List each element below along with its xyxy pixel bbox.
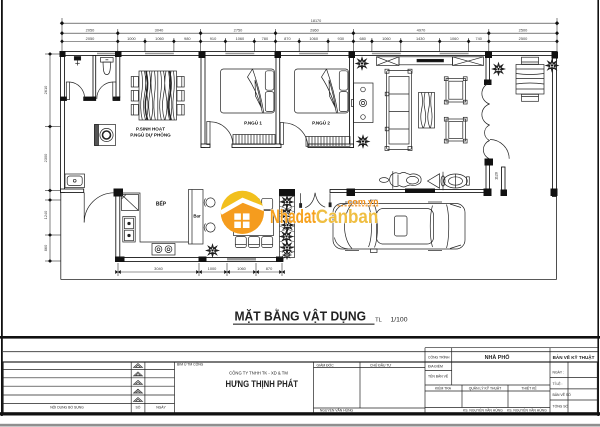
svg-text:TL: TL [375,318,383,324]
svg-text:KS. NGUYỄN VĂN HÙNG: KS. NGUYỄN VĂN HÙNG [463,408,503,413]
svg-text:CHỦ ĐẦU TƯ: CHỦ ĐẦU TƯ [370,362,391,367]
svg-text:KIỂM TRA: KIỂM TRA [435,385,452,390]
svg-text:780: 780 [262,36,269,41]
svg-text:1000: 1000 [208,266,217,271]
svg-text:P.NGỦ 2: P.NGỦ 2 [312,120,330,126]
svg-text:HƯNG THỊNH PHÁT: HƯNG THỊNH PHÁT [226,379,299,389]
svg-text:2860: 2860 [310,27,319,32]
svg-text:NGÀY: NGÀY [156,405,166,409]
svg-text:1000: 1000 [127,36,136,41]
svg-text:SỐ: SỐ [136,404,141,409]
svg-text:QUẢN LÝ KỸ THUẬT: QUẢN LÝ KỸ THUẬT [469,385,502,390]
svg-text:CÔNG TRÌNH: CÔNG TRÌNH [428,355,450,360]
svg-text:BẢN VẼ KỸ THUẬT: BẢN VẼ KỸ THUẬT [553,354,595,360]
svg-text:NGUYỄN VĂN HÙNG: NGUYỄN VĂN HÙNG [320,408,354,413]
svg-text:NỘI DUNG BỔ SUNG: NỘI DUNG BỔ SUNG [50,404,84,409]
svg-text:P.SINH HOẠT: P.SINH HOẠT [136,127,165,132]
svg-text:Bar: Bar [193,214,201,219]
svg-text:740: 740 [475,36,482,41]
svg-text:3040: 3040 [154,266,163,271]
svg-text:1060: 1060 [309,36,318,41]
svg-text:Nhadat: Nhadat [270,206,316,228]
svg-text:930: 930 [338,36,345,41]
svg-text:1120: 1120 [495,172,499,180]
svg-text:Canban: Canban [316,206,379,228]
svg-text:1060: 1060 [382,36,391,41]
svg-text:TÊN BẢN VẼ: TÊN BẢN VẼ [428,373,449,378]
svg-text:1060: 1060 [155,36,164,41]
svg-text:com.vn: com.vn [348,197,379,206]
svg-text:1/100: 1/100 [390,317,407,324]
svg-text:BẢN VẼ SỐ: BẢN VẼ SỐ [553,392,572,397]
svg-text:3040: 3040 [155,27,164,32]
svg-text:870: 870 [266,266,273,271]
svg-text:980: 980 [184,36,191,41]
svg-text:MẶT BẰNG VẬT DỤNG: MẶT BẰNG VẬT DỤNG [235,309,367,324]
svg-text:2610: 2610 [43,85,48,94]
svg-text:P.NGỦ 1: P.NGỦ 1 [244,120,262,126]
svg-text:KS. NGUYỄN VĂN HÙNG: KS. NGUYỄN VĂN HÙNG [507,408,547,413]
svg-text:2050: 2050 [86,36,95,41]
svg-text:1060: 1060 [237,266,246,271]
svg-text:860: 860 [43,244,48,251]
svg-text:2500: 2500 [519,36,528,41]
svg-text:P.NGỦ DỰ PHÒNG: P.NGỦ DỰ PHÒNG [130,130,171,137]
svg-text:TỈ LỆ :: TỈ LỆ : [553,381,563,386]
svg-text:1060: 1060 [450,36,459,41]
svg-text:1060: 1060 [236,36,245,41]
svg-text:GIÁM ĐỐC: GIÁM ĐỐC [317,362,335,367]
svg-text:910: 910 [210,36,217,41]
svg-text:BIM Ủ TM CỘNG: BIM Ủ TM CỘNG [177,362,204,367]
svg-text:ĐỊA ĐIỂM: ĐỊA ĐIỂM [428,364,443,369]
svg-text:18170: 18170 [311,19,322,23]
svg-text:2500: 2500 [519,27,528,32]
svg-text:NGÀY :: NGÀY : [553,371,564,375]
svg-text:THIẾT KẾ: THIẾT KẾ [521,385,537,390]
svg-text:2300: 2300 [43,153,48,162]
svg-text:TỔNG SỐ: TỔNG SỐ [553,403,569,408]
svg-text:2750: 2750 [234,27,243,32]
svg-text:870: 870 [284,36,291,41]
svg-text:680: 680 [359,36,366,41]
svg-text:1240: 1240 [43,210,48,219]
svg-text:2050: 2050 [86,27,95,32]
svg-text:CÔNG TY TNHH TK - XD & TM: CÔNG TY TNHH TK - XD & TM [229,370,288,375]
svg-text:BẾP: BẾP [156,201,167,208]
svg-text:4970: 4970 [417,27,426,32]
svg-text:1430: 1430 [416,36,425,41]
svg-text:NHÀ PHỐ: NHÀ PHỐ [485,354,510,361]
